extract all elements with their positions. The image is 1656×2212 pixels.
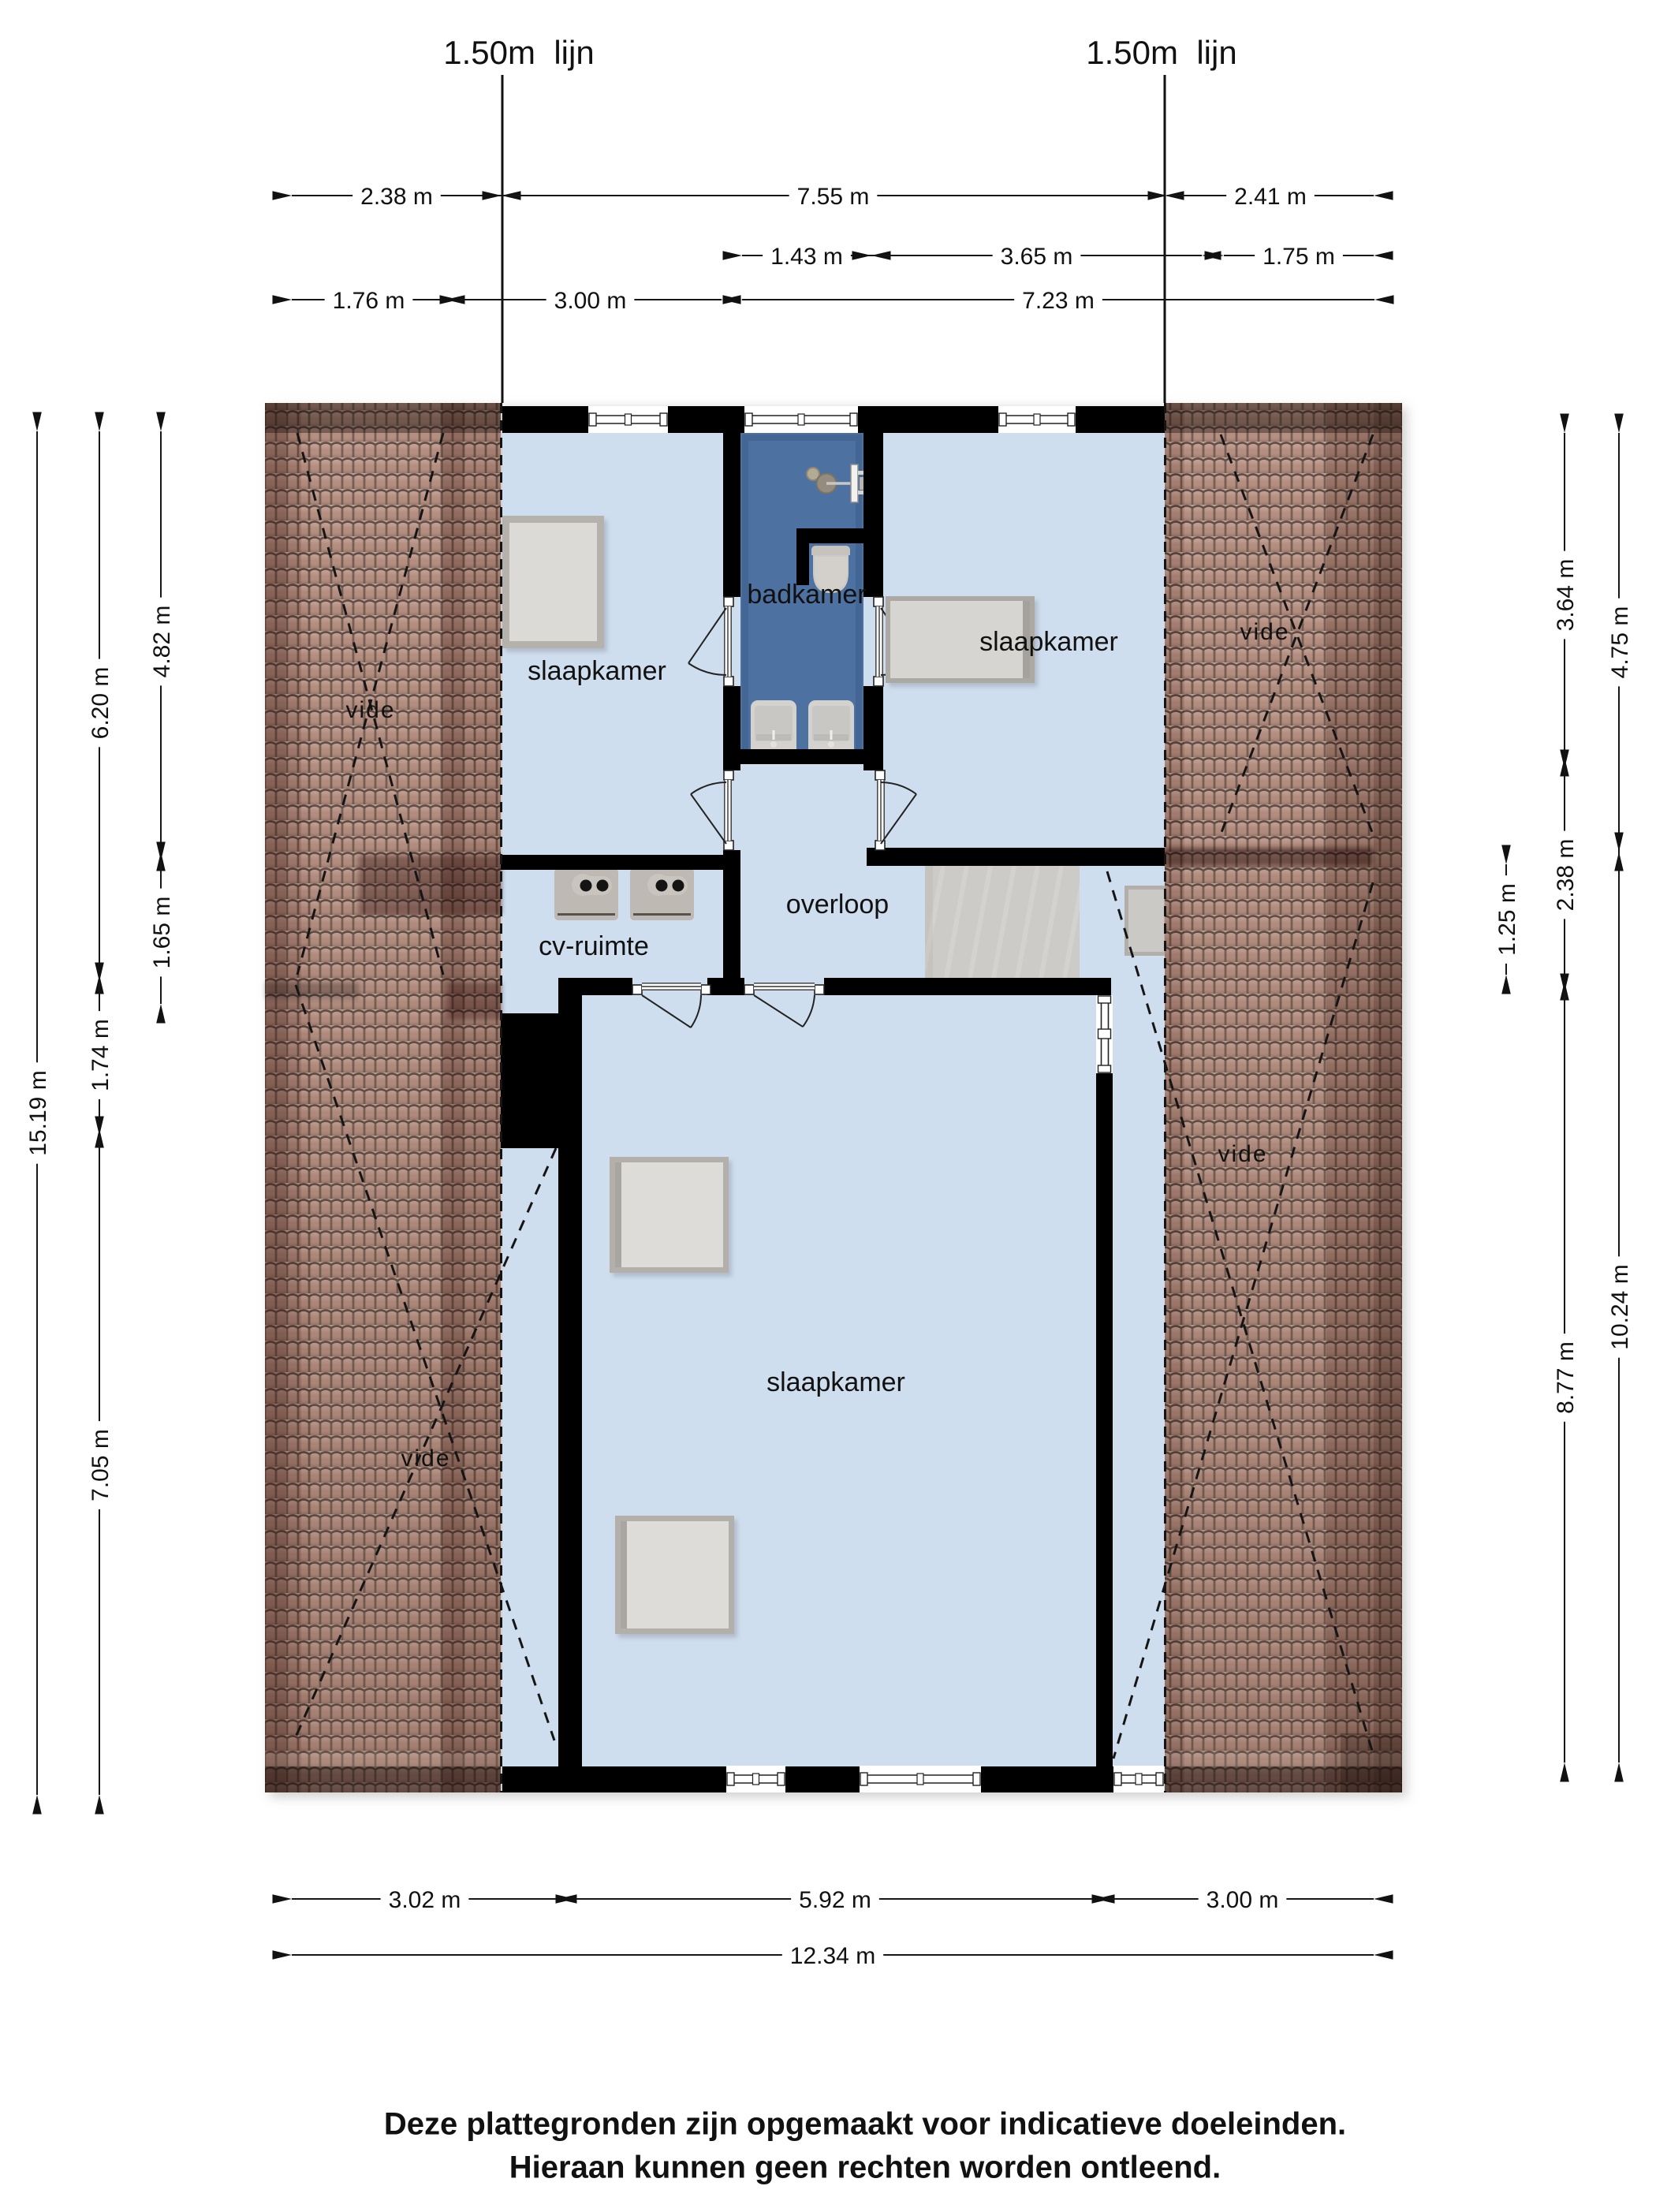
svg-text:Deze plattegronden zijn opgema: Deze plattegronden zijn opgemaakt voor i… xyxy=(384,2106,1346,2141)
svg-text:7.55 m: 7.55 m xyxy=(797,184,870,210)
svg-text:5.92 m: 5.92 m xyxy=(799,1887,871,1913)
svg-text:3.02 m: 3.02 m xyxy=(389,1887,461,1913)
svg-text:badkamer: badkamer xyxy=(747,580,866,610)
svg-text:1.65 m: 1.65 m xyxy=(149,897,175,969)
svg-text:1.43 m: 1.43 m xyxy=(770,244,843,270)
svg-text:overloop: overloop xyxy=(786,890,889,919)
svg-text:15.19 m: 15.19 m xyxy=(25,1070,51,1155)
svg-text:2.38 m: 2.38 m xyxy=(360,184,433,210)
svg-text:Hieraan kunnen geen rechten wo: Hieraan kunnen geen rechten worden ontle… xyxy=(509,2150,1221,2184)
svg-text:3.64 m: 3.64 m xyxy=(1553,559,1579,632)
svg-text:12.34 m: 12.34 m xyxy=(790,1943,875,1969)
svg-text:vide: vide xyxy=(1218,1141,1267,1167)
svg-text:7.23 m: 7.23 m xyxy=(1022,288,1095,314)
svg-text:1.76 m: 1.76 m xyxy=(333,288,405,314)
svg-text:1.75 m: 1.75 m xyxy=(1263,244,1335,270)
svg-text:1.50m lijn: 1.50m lijn xyxy=(443,34,594,71)
svg-text:slaapkamer: slaapkamer xyxy=(979,627,1118,657)
svg-text:7.05 m: 7.05 m xyxy=(88,1429,114,1501)
svg-text:8.77 m: 8.77 m xyxy=(1553,1341,1579,1414)
svg-text:vide: vide xyxy=(1240,619,1289,645)
svg-text:10.24 m: 10.24 m xyxy=(1607,1264,1633,1349)
svg-text:4.75 m: 4.75 m xyxy=(1607,606,1633,679)
svg-text:vide: vide xyxy=(345,697,395,723)
svg-text:slaapkamer: slaapkamer xyxy=(528,656,666,686)
svg-text:slaapkamer: slaapkamer xyxy=(766,1367,905,1397)
svg-text:2.41 m: 2.41 m xyxy=(1234,184,1307,210)
svg-text:3.65 m: 3.65 m xyxy=(1001,244,1073,270)
svg-text:1.25 m: 1.25 m xyxy=(1494,883,1520,956)
svg-text:cv-ruimte: cv-ruimte xyxy=(539,931,649,961)
svg-text:6.20 m: 6.20 m xyxy=(88,667,114,740)
svg-text:3.00 m: 3.00 m xyxy=(1207,1887,1279,1913)
svg-text:1.50m lijn: 1.50m lijn xyxy=(1086,34,1236,71)
svg-text:3.00 m: 3.00 m xyxy=(554,288,627,314)
svg-text:vide: vide xyxy=(401,1445,450,1472)
svg-text:2.38 m: 2.38 m xyxy=(1553,839,1579,912)
svg-text:4.82 m: 4.82 m xyxy=(149,606,175,678)
svg-text:1.74 m: 1.74 m xyxy=(88,1019,114,1091)
